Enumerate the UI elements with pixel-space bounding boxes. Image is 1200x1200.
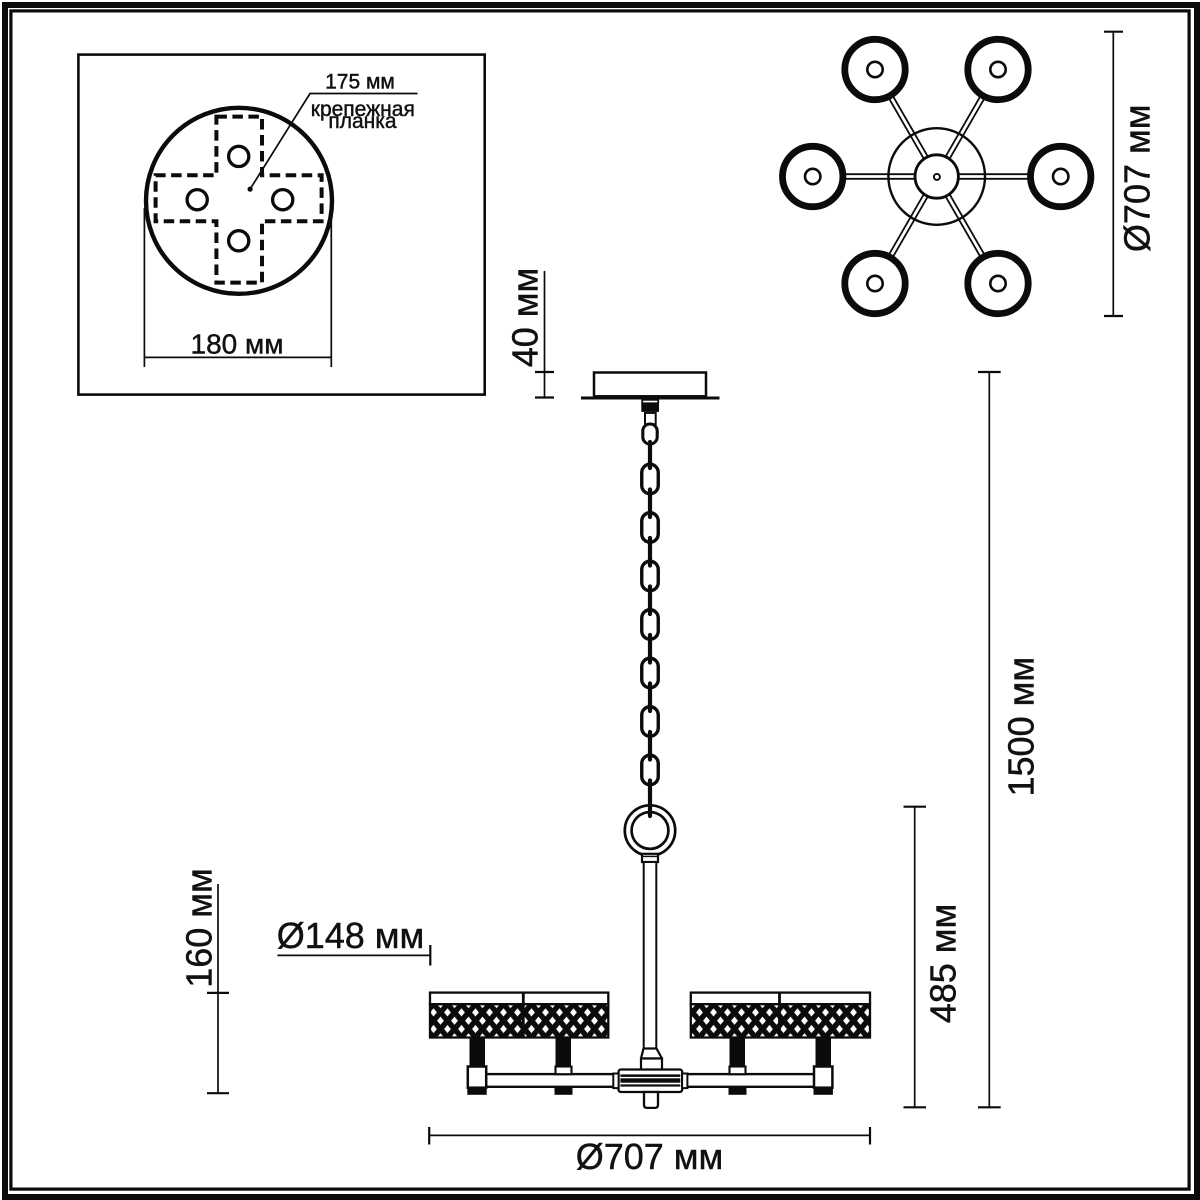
svg-text:Ø707 мм: Ø707 мм [1116,105,1157,253]
svg-text:160 мм: 160 мм [178,868,219,988]
svg-text:1500 мм: 1500 мм [1001,657,1042,797]
svg-text:планка: планка [328,110,397,133]
svg-text:Ø707 мм: Ø707 мм [576,1136,724,1177]
svg-text:175 мм: 175 мм [325,71,395,94]
svg-text:40 мм: 40 мм [505,268,546,368]
svg-text:180 мм: 180 мм [191,329,284,360]
svg-text:Ø148 мм: Ø148 мм [277,915,425,956]
svg-text:485 мм: 485 мм [922,904,963,1024]
